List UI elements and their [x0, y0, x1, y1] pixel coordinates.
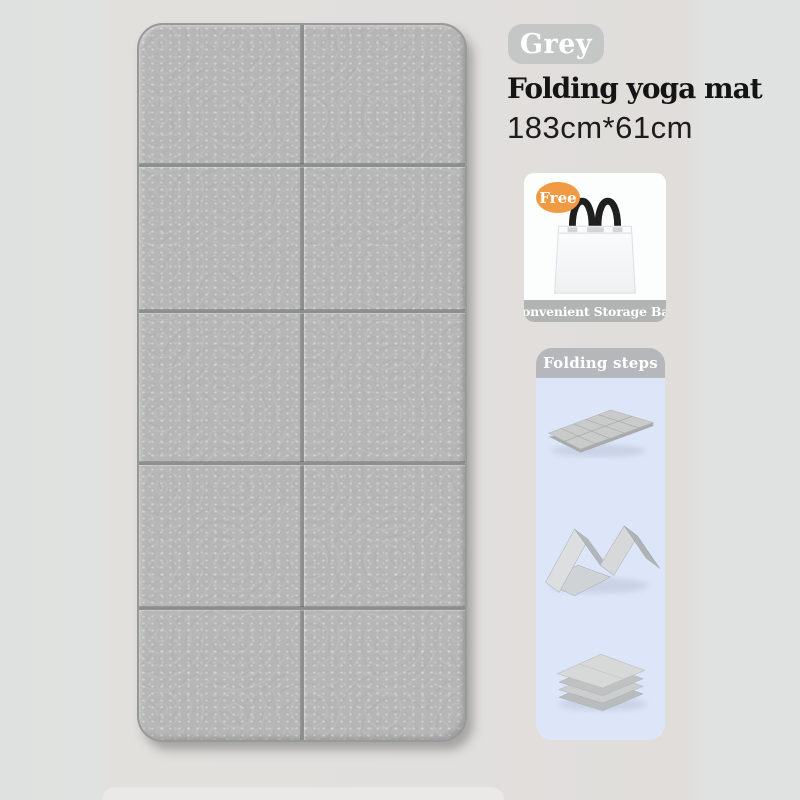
- product-banner: Grey Folding yoga mat 183cm*61cm Free: [0, 0, 800, 800]
- mat-fold-line: [139, 310, 465, 313]
- yoga-mat-image: [137, 23, 467, 742]
- mat-fold-line: [139, 462, 465, 465]
- storage-bag-caption-label: Convenient Storage Bag: [524, 304, 666, 319]
- free-badge-label: Free: [539, 189, 576, 207]
- product-title: Folding yoga mat: [507, 74, 787, 105]
- step-accordion-fold-icon: [537, 506, 665, 602]
- step-flat-mat-icon: [539, 403, 663, 465]
- storage-bag-card: Free Convenient Storage Bag: [524, 173, 666, 322]
- next-section-edge: [102, 787, 504, 800]
- folding-steps-header: Folding steps: [536, 348, 665, 378]
- mat-fold-line: [139, 164, 465, 167]
- storage-bag-caption: Convenient Storage Bag: [524, 300, 666, 322]
- step-folded-stack-icon: [542, 626, 660, 718]
- color-variant-badge: Grey: [508, 24, 604, 64]
- color-variant-label: Grey: [520, 29, 592, 60]
- mat-fold-line: [139, 607, 465, 610]
- folding-steps-header-label: Folding steps: [543, 354, 658, 372]
- mat-center-fold-line: [301, 25, 304, 740]
- free-badge: Free: [536, 182, 580, 213]
- product-size: 183cm*61cm: [507, 110, 693, 146]
- folding-steps-panel: Folding steps: [536, 348, 665, 740]
